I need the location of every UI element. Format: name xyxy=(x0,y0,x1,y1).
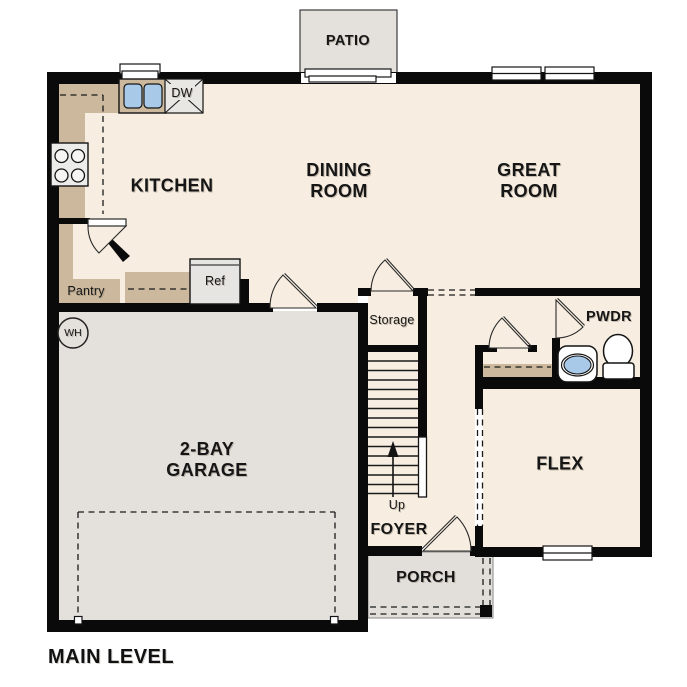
garage-east-wall xyxy=(358,303,368,632)
flex-opening-dash xyxy=(478,409,483,526)
room-label-dining-room: DINING ROOM xyxy=(306,160,371,202)
stair-east-wall xyxy=(418,288,427,437)
pantry-wall-stub xyxy=(47,218,90,224)
patio-sliding-door xyxy=(301,69,396,83)
great-room-line-1: GREAT xyxy=(497,160,561,181)
room-label-flex: FLEX xyxy=(536,454,584,475)
stair-head-wall xyxy=(358,288,371,296)
room-label-powder: PWDR xyxy=(586,309,632,325)
stairs-up-label: Up xyxy=(389,498,405,512)
floor-plan-drawing xyxy=(0,0,687,687)
refrigerator-label: Ref xyxy=(205,274,225,288)
toilet xyxy=(603,335,634,380)
great-room-south-wall xyxy=(475,288,652,296)
stair-handrail xyxy=(419,437,427,497)
water-heater-label: WH xyxy=(64,327,82,339)
kitchen-sink xyxy=(119,79,166,113)
window-great-room-1 xyxy=(492,67,541,80)
room-label-porch: PORCH xyxy=(396,569,456,587)
east-wall xyxy=(640,72,652,557)
window-kitchen xyxy=(120,64,160,80)
garage-door-corner-left xyxy=(75,617,83,625)
powder-sink xyxy=(558,346,597,382)
room-label-garage: 2-BAY GARAGE xyxy=(166,439,247,481)
great-room-line-2: ROOM xyxy=(497,181,561,202)
room-label-patio: PATIO xyxy=(326,33,370,49)
flex-west-stub xyxy=(475,526,483,547)
garage-line-1: 2-BAY xyxy=(166,439,247,460)
room-label-great-room: GREAT ROOM xyxy=(497,160,561,202)
stair-stringer xyxy=(368,345,418,352)
garage-line-2: GARAGE xyxy=(166,460,247,481)
garage-south-wall xyxy=(47,620,368,632)
garage-door-corner-right xyxy=(331,617,339,625)
foyer-south-wall xyxy=(358,546,422,556)
ref-wall-stub xyxy=(240,279,249,305)
dishwasher-label: DW xyxy=(171,86,192,100)
floor-plan: PATIO KITCHEN DINING ROOM GREAT ROOM 2-B… xyxy=(0,0,687,687)
porch-post xyxy=(480,605,492,617)
room-label-storage: Storage xyxy=(369,313,414,327)
range-stove xyxy=(51,143,88,186)
room-label-pantry: Pantry xyxy=(67,284,104,298)
room-label-foyer: FOYER xyxy=(370,521,427,539)
dining-room-line-2: ROOM xyxy=(306,181,371,202)
dining-room-line-1: DINING xyxy=(306,160,371,181)
window-flex xyxy=(543,546,592,560)
room-label-kitchen: KITCHEN xyxy=(131,176,214,197)
plan-title: MAIN LEVEL xyxy=(48,646,174,669)
window-great-room-2 xyxy=(545,67,594,80)
